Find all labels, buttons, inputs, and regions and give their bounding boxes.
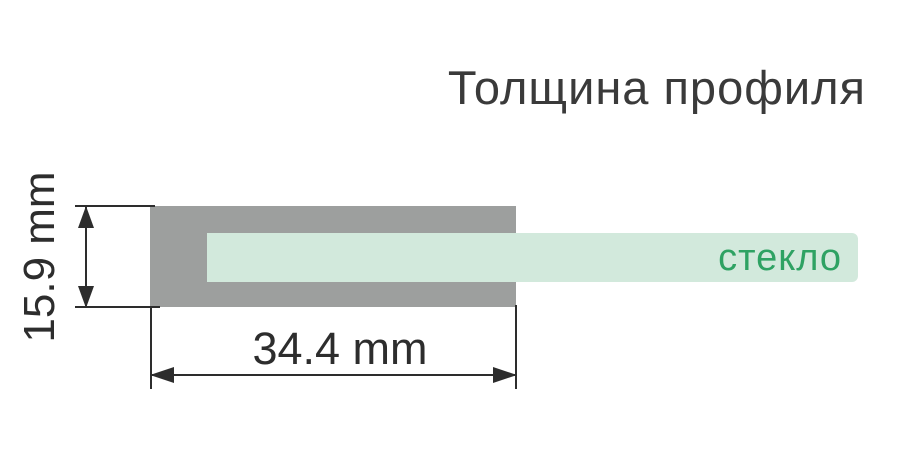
height-dimension-arrow-line [85,207,87,307]
width-dimension-arrow-line [151,374,516,376]
diagram-canvas: Толщина профиля стекло 15.9 mm 34.4 mm [0,0,900,465]
width-dimension-label: 34.4 mm [240,326,440,371]
glass-panel: стекло [207,233,858,282]
height-dimension-label: 15.9 mm [15,155,65,359]
glass-label: стекло [718,239,858,277]
page-title: Толщина профиля [448,64,866,111]
